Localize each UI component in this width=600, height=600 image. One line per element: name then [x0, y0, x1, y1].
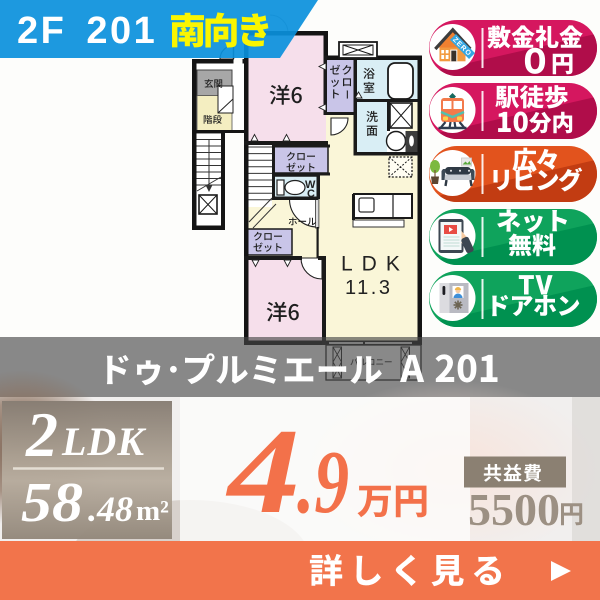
svg-text:5500: 5500 — [468, 484, 560, 535]
svg-text:C: C — [307, 188, 315, 200]
svg-text:.48: .48 — [88, 489, 133, 529]
svg-text:2: 2 — [25, 399, 58, 470]
svg-text:m²: m² — [136, 495, 169, 527]
svg-text:4: 4 — [226, 404, 300, 539]
svg-text:LDK: LDK — [61, 419, 146, 464]
svg-text:58: 58 — [21, 472, 83, 534]
svg-text:.9: .9 — [297, 433, 349, 532]
svg-text:LDK: LDK — [341, 253, 409, 276]
svg-text:11.3: 11.3 — [345, 277, 392, 299]
svg-text:2F 201: 2F 201 — [17, 10, 157, 52]
